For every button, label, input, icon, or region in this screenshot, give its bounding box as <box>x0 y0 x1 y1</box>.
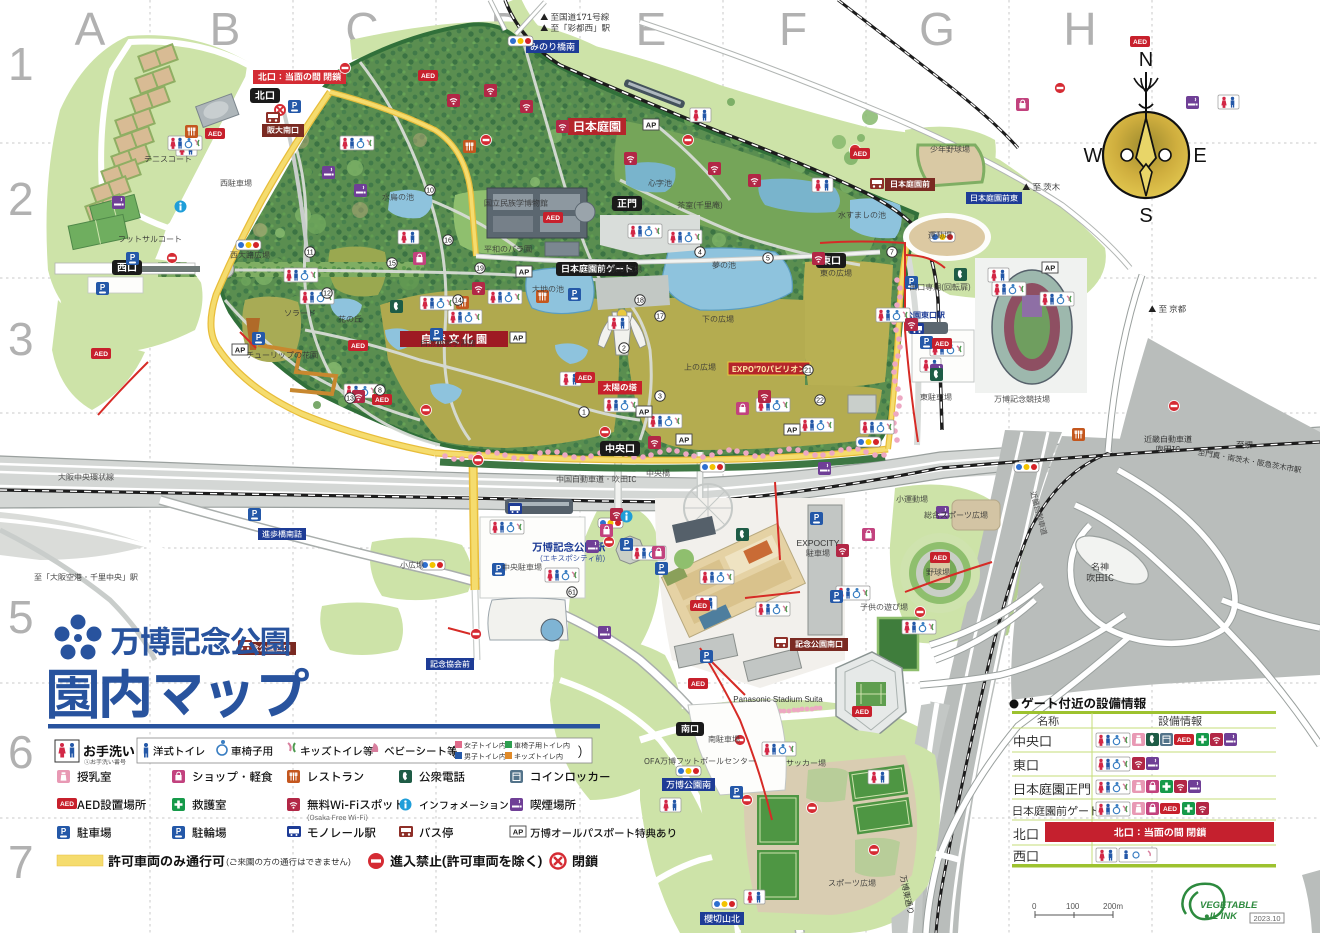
svg-text:10: 10 <box>426 188 434 195</box>
svg-text:3: 3 <box>658 394 662 401</box>
svg-text:11: 11 <box>306 250 313 257</box>
svg-text:●IL INK: ●IL INK <box>1204 911 1238 922</box>
svg-text:A: A <box>75 3 106 55</box>
svg-text:W: W <box>1084 145 1103 167</box>
svg-text:17: 17 <box>656 314 664 321</box>
svg-text:100: 100 <box>1066 902 1080 911</box>
svg-text:1: 1 <box>582 410 586 417</box>
svg-text:15: 15 <box>388 261 396 268</box>
svg-text:2: 2 <box>622 346 626 353</box>
svg-text:6: 6 <box>8 726 34 778</box>
svg-text:1: 1 <box>8 38 34 90</box>
svg-text:16: 16 <box>444 238 452 245</box>
svg-text:0: 0 <box>1032 902 1037 911</box>
svg-text:22: 22 <box>816 398 824 405</box>
svg-text:EXPOCITY: EXPOCITY <box>797 538 840 548</box>
svg-text:7: 7 <box>890 250 894 257</box>
svg-text:2023.10: 2023.10 <box>1253 914 1280 923</box>
svg-text:14: 14 <box>454 298 462 305</box>
svg-text:21: 21 <box>804 368 812 375</box>
svg-text:H: H <box>1063 3 1096 55</box>
svg-text:N: N <box>1139 49 1153 71</box>
svg-text:5: 5 <box>766 256 770 263</box>
svg-text:5: 5 <box>8 591 34 643</box>
svg-text:VEGETABLE: VEGETABLE <box>1200 900 1258 911</box>
svg-text:Panasonic Stadium Suita: Panasonic Stadium Suita <box>733 695 823 704</box>
svg-text:12: 12 <box>323 291 331 298</box>
svg-text:7: 7 <box>8 836 34 888</box>
svg-text:3: 3 <box>8 313 34 365</box>
svg-text:61: 61 <box>568 590 576 597</box>
svg-text:S: S <box>1139 205 1152 227</box>
svg-text:G: G <box>919 3 955 55</box>
svg-text:F: F <box>779 3 807 55</box>
svg-text:4: 4 <box>698 250 702 257</box>
svg-text:19: 19 <box>476 266 484 273</box>
svg-text:18: 18 <box>636 298 644 305</box>
svg-text:E: E <box>1193 145 1206 167</box>
svg-text:200m: 200m <box>1103 902 1123 911</box>
svg-text:2: 2 <box>8 173 34 225</box>
svg-text:13: 13 <box>346 396 354 403</box>
svg-text:8: 8 <box>378 388 382 395</box>
